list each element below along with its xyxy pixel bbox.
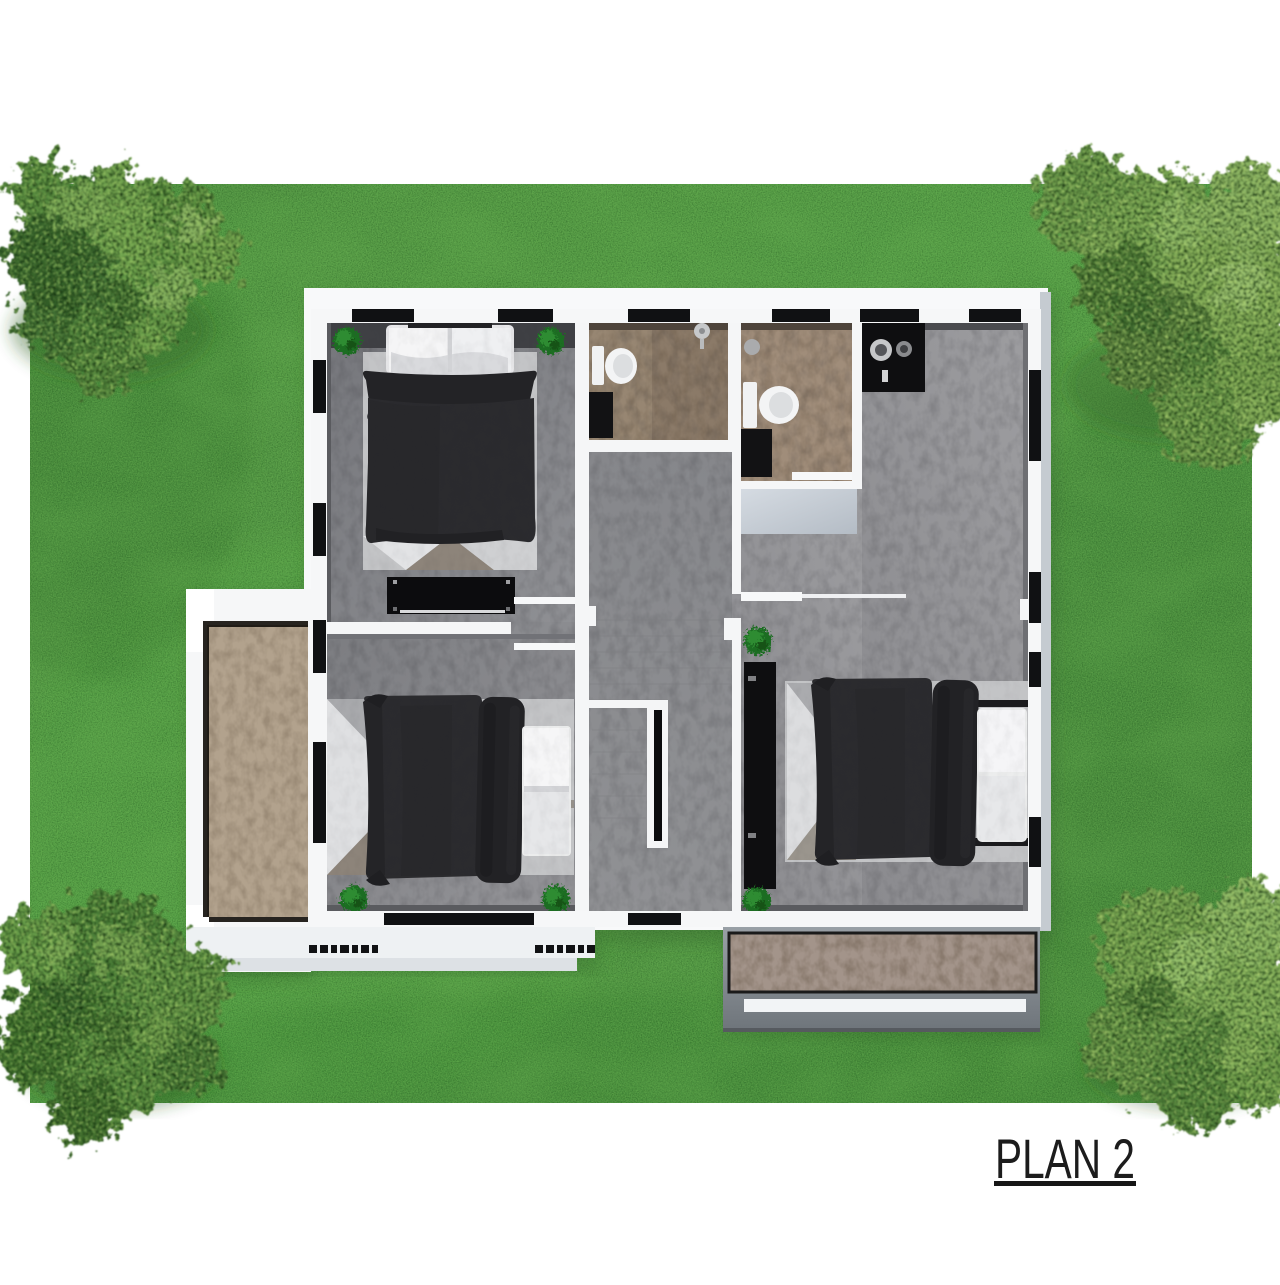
svg-text:PLAN 2: PLAN 2 xyxy=(995,1127,1135,1190)
